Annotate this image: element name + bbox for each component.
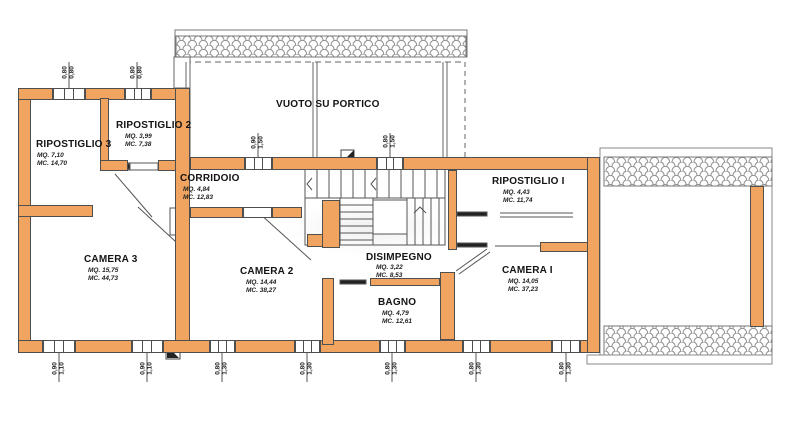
room-mc-bagno: MC. 12,61: [382, 319, 412, 326]
dim-bottom-window-4: 0,80 1,30: [300, 355, 315, 381]
portico-roof-band: [174, 30, 467, 157]
window-camera2-a: [210, 340, 235, 353]
room-mq-camera3: MQ. 15,75: [88, 268, 118, 275]
wall-rip1-left: [448, 170, 457, 250]
window-corridor: [245, 157, 272, 170]
wall-corridor-top-b: [272, 157, 377, 170]
room-mc-camera3: MC. 44,73: [88, 276, 118, 283]
room-label-disimpegno: DISIMPEGNO: [366, 253, 432, 263]
room-label-ripostiglio3: RIPOSTIGLIO 3: [36, 140, 111, 150]
room-mq-bagno: MQ. 4,79: [382, 311, 409, 318]
wall-rip2-bottom-a: [100, 160, 128, 171]
floor-plan: RIPOSTIGLIO 3 MQ. 7,10 MC. 14,70 RIPOSTI…: [0, 0, 800, 440]
room-mc-corridoio: MC. 12,83: [183, 195, 213, 202]
window-stairs: [377, 157, 403, 170]
wall-terrace-right: [750, 186, 764, 327]
dim-bottom-window-6: 0,80 1,30: [469, 355, 484, 381]
window-camera3-a: [43, 340, 75, 353]
room-mq-corridoio: MQ. 4,84: [183, 187, 210, 194]
window-camera1-b: [552, 340, 580, 353]
window-camera3-b: [132, 340, 163, 353]
room-mc-ripostiglio1: MC. 11,74: [503, 198, 533, 205]
room-mc-ripostiglio2: MC. 7,38: [125, 142, 151, 149]
room-label-camera2: CAMERA 2: [240, 267, 293, 277]
room-mc-camera2: MC. 38,27: [246, 288, 276, 295]
dim-top-window-2: 0,80 0,80: [130, 59, 145, 85]
room-label-bagno: BAGNO: [378, 298, 416, 308]
wall-corridor-top-c: [403, 157, 597, 170]
room-label-camera1: CAMERA I: [502, 266, 553, 276]
window-camera2-b: [295, 340, 320, 353]
wall-camera3-top: [18, 205, 93, 217]
wall-stair-stub-vertical: [322, 200, 340, 248]
wall-left-outer: [18, 88, 31, 353]
room-mq-camera2: MQ. 14,44: [246, 280, 276, 287]
area-label-vuoto-su-portico: VUOTO SU PORTICO: [276, 100, 380, 110]
wall-top-left-a: [18, 88, 53, 100]
room-label-camera3: CAMERA 3: [84, 255, 137, 265]
wall-camera2-top-a: [190, 207, 243, 218]
room-mc-ripostiglio3: MC. 14,70: [37, 161, 67, 168]
room-mq-ripostiglio3: MQ. 7,10: [37, 153, 64, 160]
dim-bottom-window-3: 0,80 1,30: [215, 355, 230, 381]
dim-bottom-window-5: 0,80 1,30: [385, 355, 400, 381]
window-camera1-a: [463, 340, 490, 353]
room-mq-camera1: MQ. 14,05: [508, 279, 538, 286]
window-bagno: [380, 340, 405, 353]
room-mq-ripostiglio1: MQ. 4,43: [503, 190, 530, 197]
wall-bottom-a: [18, 340, 43, 353]
room-label-ripostiglio1: RIPOSTIGLIO I: [492, 177, 565, 187]
wall-bottom-g: [490, 340, 552, 353]
room-mc-camera1: MC. 37,23: [508, 287, 538, 294]
wall-bagno-camera1-divider: [440, 272, 455, 340]
wall-bottom-d: [235, 340, 295, 353]
dim-corridor-window-2: 0,80 1,50: [383, 128, 398, 154]
wall-camera1-top: [540, 242, 588, 252]
dim-bottom-window-2: 0,90 1,10: [140, 355, 155, 381]
room-mq-disimpegno: MQ. 3,22: [376, 265, 403, 272]
room-mc-disimpegno: MC. 8,53: [376, 273, 402, 280]
dim-bottom-window-1: 0,90 1,10: [52, 355, 67, 381]
wall-corridor-top-a: [190, 157, 245, 170]
wall-stair-stub-horizontal: [307, 234, 323, 247]
room-mq-ripostiglio2: MQ. 3,99: [125, 134, 152, 141]
wall-bottom-c: [163, 340, 210, 353]
plan-linework: [0, 0, 800, 440]
wall-right-outer: [587, 157, 600, 353]
door-camera2: [243, 207, 272, 218]
window-rip2: [125, 88, 151, 100]
wall-bottom-b: [75, 340, 132, 353]
terrace: [587, 148, 772, 364]
wall-camera2-right: [322, 278, 334, 345]
dim-bottom-window-7: 0,80 1,30: [559, 355, 574, 381]
dim-corridor-window-1: 0,90 1,50: [251, 129, 266, 155]
room-label-ripostiglio2: RIPOSTIGLIO 2: [116, 121, 191, 131]
dim-top-window-1: 0,80 0,80: [62, 59, 77, 85]
window-rip3: [53, 88, 85, 100]
wall-bottom-f: [405, 340, 463, 353]
wall-camera2-top-b: [272, 207, 302, 218]
room-label-corridoio: CORRIDOIO: [180, 174, 240, 184]
